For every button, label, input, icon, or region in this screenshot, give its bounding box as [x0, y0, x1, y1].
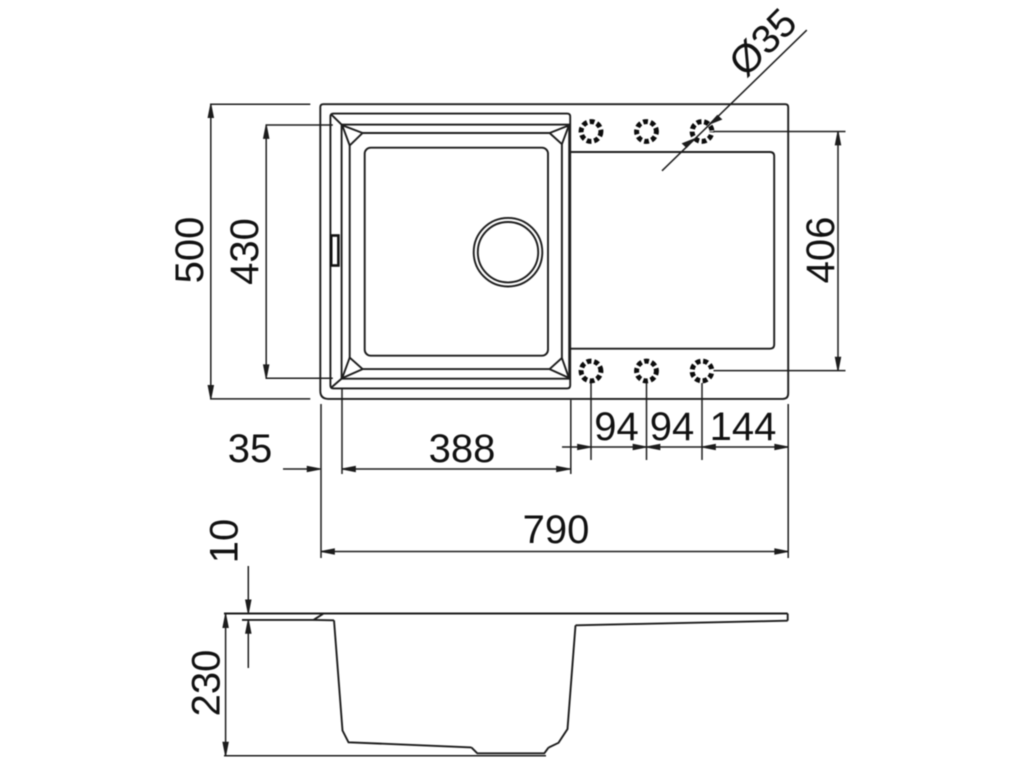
svg-text:430: 430: [223, 218, 267, 285]
svg-text:94: 94: [650, 405, 695, 449]
svg-text:406: 406: [799, 217, 843, 284]
svg-text:10: 10: [203, 519, 247, 564]
svg-text:230: 230: [185, 650, 229, 717]
svg-text:500: 500: [168, 217, 212, 284]
svg-text:35: 35: [228, 427, 273, 471]
svg-text:388: 388: [429, 427, 496, 471]
svg-text:144: 144: [710, 405, 777, 449]
svg-text:Ø35: Ø35: [721, 0, 806, 85]
svg-text:790: 790: [523, 508, 590, 552]
svg-text:94: 94: [594, 405, 639, 449]
